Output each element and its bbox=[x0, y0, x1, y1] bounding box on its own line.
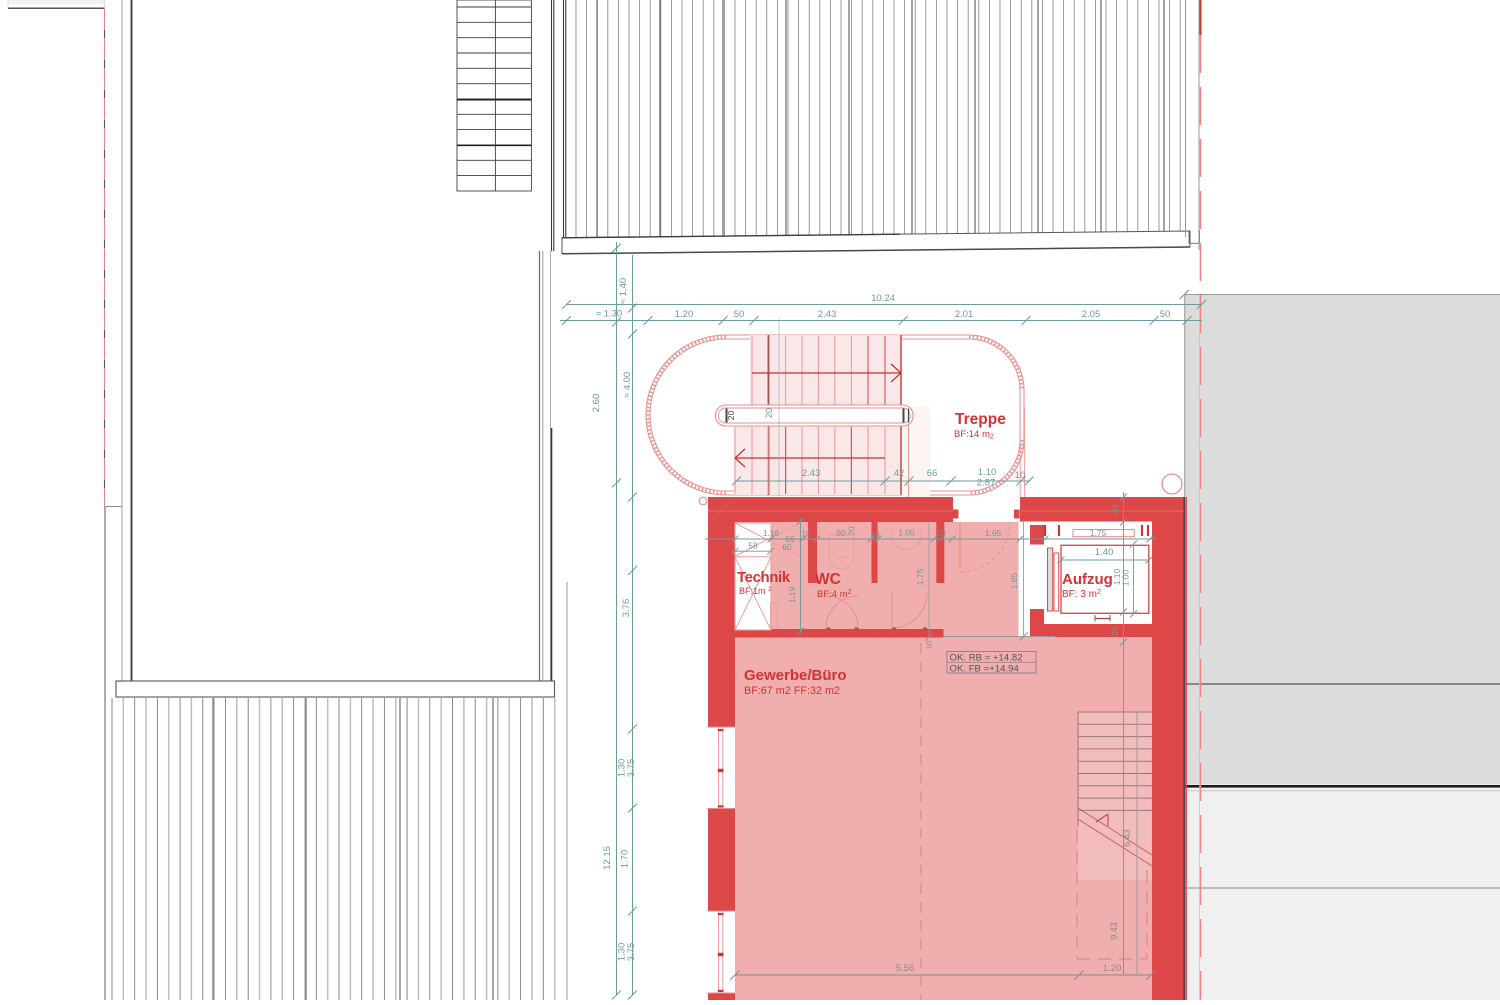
svg-text:BF:4 m2: BF:4 m2 bbox=[817, 589, 852, 600]
svg-text:Technik: Technik bbox=[737, 569, 791, 586]
svg-text:BF: 3 m2: BF: 3 m2 bbox=[1062, 589, 1101, 600]
svg-text:Gewerbe/Büro: Gewerbe/Büro bbox=[744, 667, 847, 684]
svg-text:66: 66 bbox=[927, 468, 938, 479]
svg-text:50: 50 bbox=[734, 309, 745, 320]
svg-text:44: 44 bbox=[1110, 504, 1120, 514]
svg-text:1.85: 1.85 bbox=[1009, 572, 1019, 589]
svg-text:2.43: 2.43 bbox=[818, 309, 837, 320]
svg-text:1.20: 1.20 bbox=[1103, 963, 1122, 974]
svg-text:10: 10 bbox=[936, 528, 946, 538]
svg-text:WC: WC bbox=[815, 571, 841, 588]
svg-text:2.87: 2.87 bbox=[977, 478, 996, 489]
svg-text:20: 20 bbox=[848, 526, 857, 535]
svg-text:10: 10 bbox=[1015, 470, 1026, 481]
svg-text:20: 20 bbox=[726, 411, 736, 421]
svg-text:58: 58 bbox=[748, 541, 758, 551]
svg-text:2.43: 2.43 bbox=[802, 468, 821, 479]
svg-text:90: 90 bbox=[836, 528, 846, 538]
svg-text:2.60: 2.60 bbox=[591, 394, 602, 413]
svg-text:2.05: 2.05 bbox=[1082, 309, 1101, 320]
svg-text:1.40: 1.40 bbox=[1095, 547, 1114, 558]
svg-text:10: 10 bbox=[925, 641, 934, 649]
svg-text:1.70: 1.70 bbox=[620, 850, 631, 869]
svg-text:BF:67 m2 FF:32 m2: BF:67 m2 FF:32 m2 bbox=[744, 685, 840, 697]
svg-text:12.15: 12.15 bbox=[602, 846, 613, 870]
svg-text:1.00: 1.00 bbox=[898, 528, 915, 538]
svg-text:3.76: 3.76 bbox=[621, 599, 632, 618]
svg-text:9.43: 9.43 bbox=[1109, 922, 1119, 940]
svg-text:5.56: 5.56 bbox=[896, 963, 915, 974]
svg-text:1.00: 1.00 bbox=[1121, 569, 1131, 586]
svg-text:6.43: 6.43 bbox=[1122, 829, 1132, 847]
svg-text:60: 60 bbox=[782, 542, 792, 552]
svg-text:1.75: 1.75 bbox=[915, 568, 925, 585]
svg-text:OK. FB =+14.94: OK. FB =+14.94 bbox=[950, 663, 1020, 674]
svg-text:10.24: 10.24 bbox=[871, 293, 895, 304]
svg-text:50: 50 bbox=[1160, 309, 1171, 320]
svg-text:≈ 4.00: ≈ 4.00 bbox=[622, 372, 633, 398]
svg-text:1.75: 1.75 bbox=[1090, 528, 1107, 538]
svg-text:Treppe: Treppe bbox=[955, 411, 1006, 428]
svg-text:1.16: 1.16 bbox=[763, 528, 780, 538]
svg-text:1.10: 1.10 bbox=[978, 467, 997, 478]
svg-text:20: 20 bbox=[764, 408, 774, 418]
svg-text:1.19: 1.19 bbox=[787, 586, 797, 603]
svg-text:≈ 1.40: ≈ 1.40 bbox=[618, 278, 629, 304]
svg-text:42: 42 bbox=[894, 468, 905, 479]
svg-text:BF:14 m2: BF:14 m2 bbox=[954, 429, 994, 441]
svg-text:10: 10 bbox=[870, 529, 880, 539]
svg-text:2.01: 2.01 bbox=[955, 309, 974, 320]
svg-text:3.75: 3.75 bbox=[626, 759, 637, 778]
svg-text:3.75: 3.75 bbox=[626, 943, 637, 962]
svg-text:OK. RB = +14.82: OK. RB = +14.82 bbox=[950, 653, 1023, 664]
svg-text:25: 25 bbox=[1110, 626, 1120, 636]
svg-text:Aufzug: Aufzug bbox=[1062, 571, 1113, 588]
svg-text:1.20: 1.20 bbox=[675, 309, 694, 320]
svg-text:BF:1m 2: BF:1m 2 bbox=[739, 586, 772, 596]
svg-text:10: 10 bbox=[801, 529, 811, 539]
svg-text:≈ 1.30: ≈ 1.30 bbox=[596, 309, 622, 320]
svg-text:1.65: 1.65 bbox=[985, 528, 1002, 538]
